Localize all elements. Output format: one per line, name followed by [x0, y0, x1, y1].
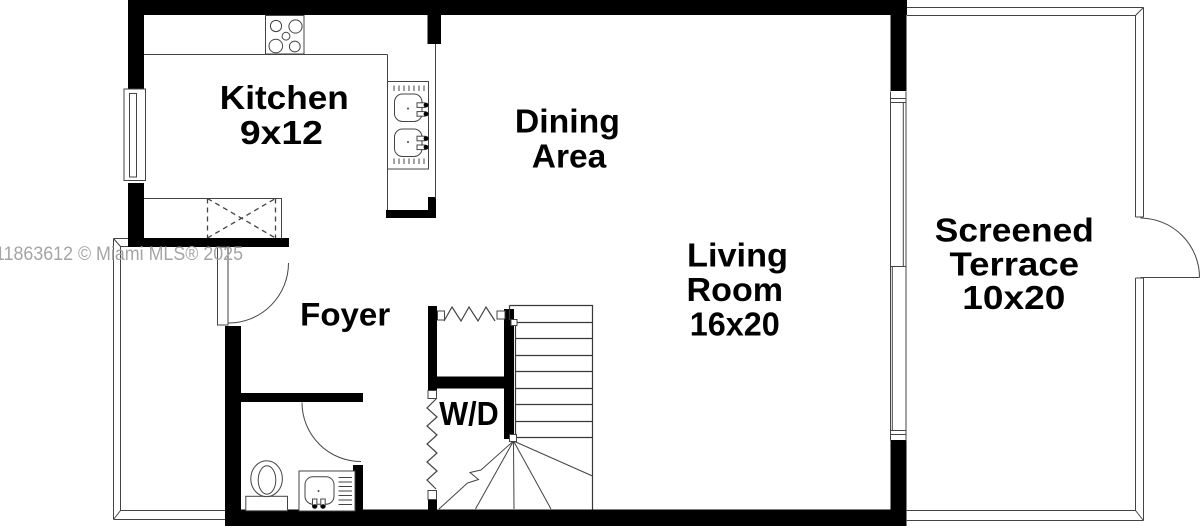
- svg-text:Screened: Screened: [935, 213, 1094, 250]
- svg-text:11863612 © Miami MLS® 2025: 11863612 © Miami MLS® 2025: [0, 243, 243, 265]
- svg-text:Room: Room: [687, 272, 784, 309]
- svg-text:W/D: W/D: [439, 396, 499, 433]
- svg-text:Kitchen: Kitchen: [220, 80, 349, 117]
- svg-text:Area: Area: [532, 139, 607, 176]
- svg-text:10x20: 10x20: [962, 280, 1065, 317]
- svg-text:Dining: Dining: [515, 104, 620, 141]
- svg-text:16x20: 16x20: [690, 307, 780, 344]
- svg-text:Living: Living: [687, 238, 788, 275]
- svg-text:Foyer: Foyer: [300, 297, 390, 333]
- svg-text:9x12: 9x12: [240, 115, 323, 152]
- svg-text:Terrace: Terrace: [950, 247, 1080, 284]
